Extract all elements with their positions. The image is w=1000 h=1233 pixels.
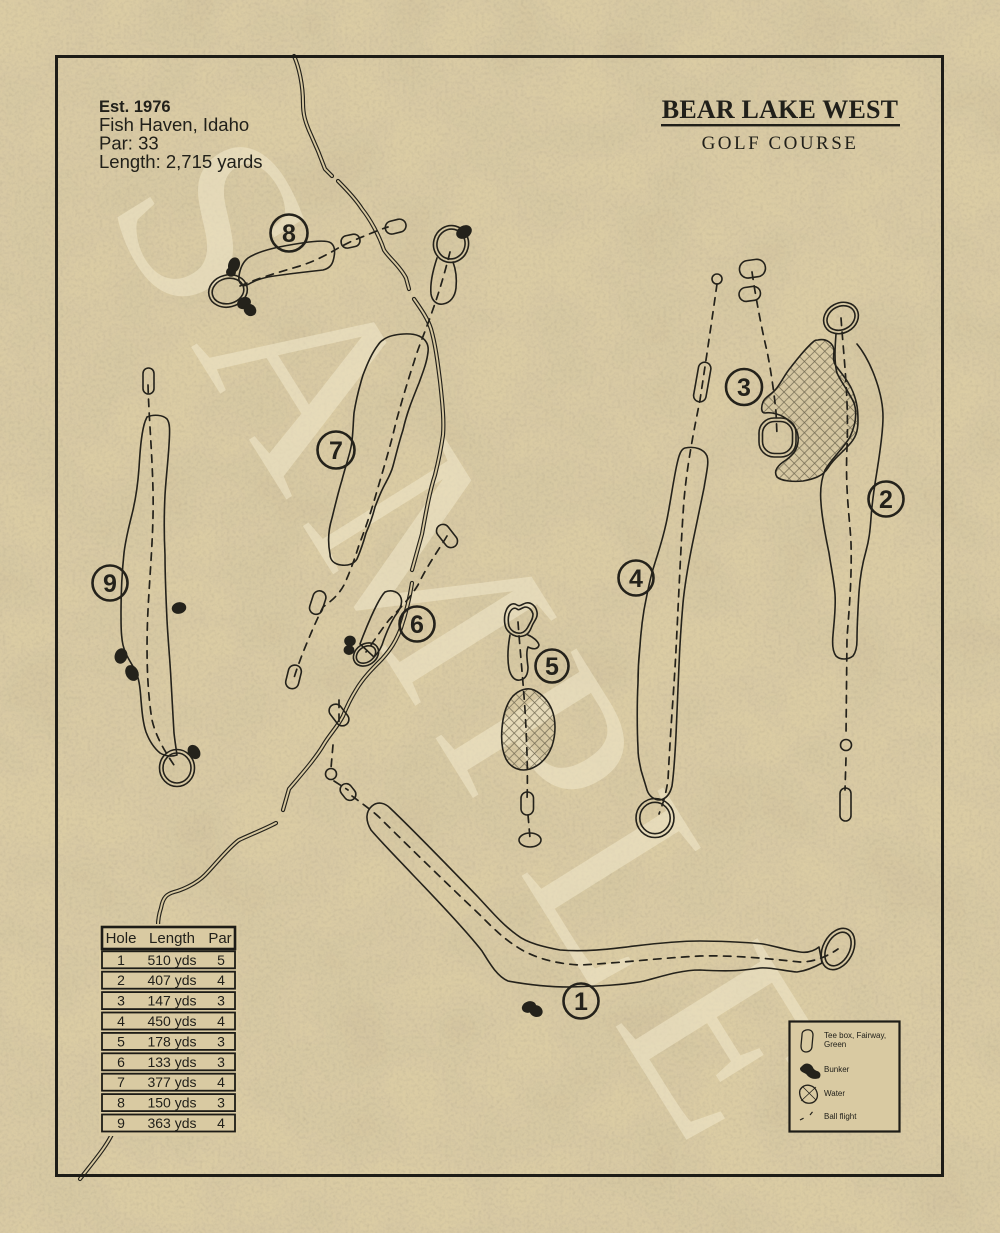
svg-text:GOLF COURSE: GOLF COURSE: [702, 133, 859, 154]
svg-text:407 yds: 407 yds: [147, 972, 196, 988]
svg-text:3: 3: [217, 1054, 225, 1070]
svg-text:363 yds: 363 yds: [147, 1115, 196, 1131]
svg-text:Bunker: Bunker: [824, 1065, 850, 1074]
svg-text:4: 4: [217, 1074, 225, 1090]
svg-text:4: 4: [629, 565, 643, 593]
svg-text:BEAR LAKE WEST: BEAR LAKE WEST: [662, 95, 898, 124]
svg-text:Water: Water: [824, 1089, 845, 1098]
svg-text:147 yds: 147 yds: [147, 993, 196, 1009]
svg-text:5: 5: [217, 952, 225, 968]
svg-text:377 yds: 377 yds: [147, 1074, 196, 1090]
svg-text:150 yds: 150 yds: [147, 1095, 196, 1111]
svg-text:5: 5: [545, 653, 559, 681]
svg-text:4: 4: [117, 1013, 125, 1029]
svg-text:9: 9: [117, 1115, 125, 1131]
svg-text:Ball flight: Ball flight: [824, 1112, 857, 1121]
svg-text:510 yds: 510 yds: [147, 952, 196, 968]
svg-text:178 yds: 178 yds: [147, 1033, 196, 1049]
svg-text:5: 5: [117, 1033, 125, 1049]
svg-text:8: 8: [117, 1095, 125, 1111]
svg-text:3: 3: [737, 374, 751, 402]
svg-text:3: 3: [217, 1033, 225, 1049]
svg-text:Par: Par: [208, 930, 231, 947]
svg-text:9: 9: [103, 570, 117, 598]
svg-text:Green: Green: [824, 1040, 846, 1049]
svg-text:4: 4: [217, 1013, 225, 1029]
svg-text:Hole: Hole: [106, 930, 137, 947]
svg-text:6: 6: [410, 611, 424, 639]
svg-text:4: 4: [217, 1115, 225, 1131]
svg-text:6: 6: [117, 1054, 125, 1070]
svg-text:450 yds: 450 yds: [147, 1013, 196, 1029]
svg-text:8: 8: [282, 220, 296, 248]
svg-text:7: 7: [329, 437, 343, 465]
svg-text:3: 3: [217, 993, 225, 1009]
svg-text:Length: 2,715 yards: Length: 2,715 yards: [99, 151, 263, 172]
svg-text:2: 2: [879, 486, 893, 514]
svg-text:Tee box, Fairway,: Tee box, Fairway,: [824, 1031, 886, 1040]
svg-text:133 yds: 133 yds: [147, 1054, 196, 1070]
svg-text:3: 3: [217, 1095, 225, 1111]
svg-text:4: 4: [217, 972, 225, 988]
svg-text:1: 1: [117, 952, 125, 968]
svg-text:1: 1: [574, 988, 588, 1016]
svg-text:2: 2: [117, 972, 125, 988]
svg-text:7: 7: [117, 1074, 125, 1090]
svg-text:3: 3: [117, 993, 125, 1009]
svg-text:Length: Length: [149, 930, 195, 947]
